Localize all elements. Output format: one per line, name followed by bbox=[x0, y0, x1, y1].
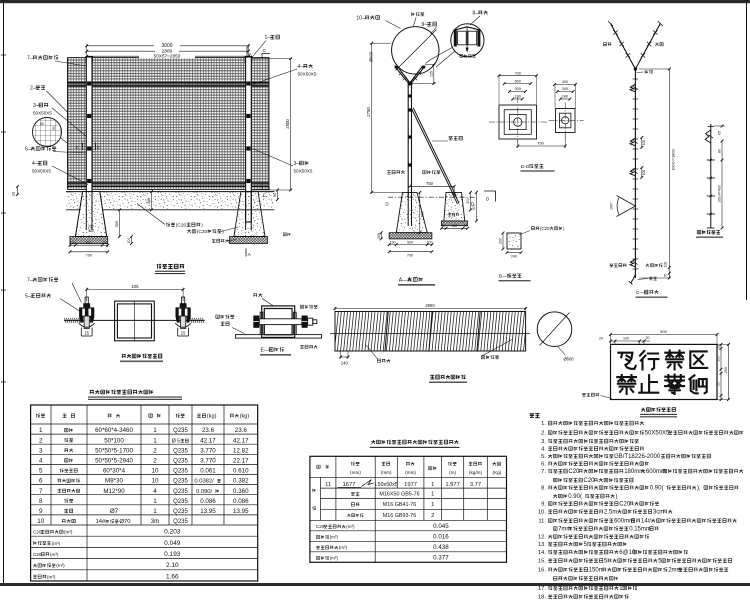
svg-text:): ) bbox=[563, 226, 565, 231]
svg-text:0.203: 0.203 bbox=[164, 529, 181, 536]
svg-text:1: 1 bbox=[153, 437, 157, 444]
svg-text:0.360: 0.360 bbox=[233, 488, 249, 495]
svg-text:250: 250 bbox=[88, 225, 94, 229]
svg-text:15: 15 bbox=[84, 331, 89, 336]
svg-text:(kg/m): (kg/m) bbox=[469, 470, 482, 475]
svg-text:300: 300 bbox=[562, 87, 568, 91]
svg-text:Ø7: Ø7 bbox=[110, 508, 119, 515]
svg-text:500: 500 bbox=[86, 241, 92, 245]
svg-text:C—C: C—C bbox=[636, 290, 648, 296]
svg-text:105: 105 bbox=[131, 284, 139, 289]
svg-text:D: D bbox=[385, 202, 389, 207]
svg-text:Ø600: Ø600 bbox=[369, 51, 374, 62]
svg-text:65: 65 bbox=[718, 131, 722, 135]
svg-text:2.5m: 2.5m bbox=[604, 510, 617, 516]
svg-text:50X50X5: 50X50X5 bbox=[298, 72, 317, 77]
svg-text:): ) bbox=[222, 229, 224, 235]
svg-text:C20: C20 bbox=[316, 524, 325, 529]
svg-text:200: 200 bbox=[499, 238, 503, 244]
svg-text:2990: 2990 bbox=[425, 303, 435, 308]
svg-text:125: 125 bbox=[429, 71, 433, 77]
svg-text:100: 100 bbox=[642, 170, 646, 176]
svg-text:Q235: Q235 bbox=[173, 509, 188, 515]
svg-text:5.: 5. bbox=[541, 454, 546, 460]
svg-text:2750: 2750 bbox=[366, 107, 371, 117]
svg-text:100: 100 bbox=[70, 241, 76, 245]
svg-text:300: 300 bbox=[452, 224, 458, 228]
svg-text:0.045: 0.045 bbox=[433, 523, 449, 530]
svg-text:1.977: 1.977 bbox=[445, 482, 460, 488]
svg-text:17.: 17. bbox=[538, 586, 546, 592]
svg-text:1: 1 bbox=[153, 508, 157, 515]
svg-text:1.: 1. bbox=[541, 421, 546, 427]
svg-text:16.: 16. bbox=[538, 568, 546, 574]
svg-text:10: 10 bbox=[37, 518, 45, 525]
svg-text:11: 11 bbox=[325, 482, 331, 488]
svg-text:(m³): (m³) bbox=[330, 556, 339, 561]
svg-text:4: 4 bbox=[153, 488, 157, 495]
svg-text:50*50*5-1700: 50*50*5-1700 bbox=[95, 447, 133, 454]
svg-text:50*100: 50*100 bbox=[104, 437, 124, 444]
svg-text:E: E bbox=[97, 145, 100, 150]
svg-text:Q235: Q235 bbox=[173, 489, 188, 495]
svg-text:M16 GB41-76: M16 GB41-76 bbox=[383, 502, 417, 508]
svg-text:0.382: 0.382 bbox=[233, 478, 249, 485]
svg-text:300: 300 bbox=[466, 198, 470, 204]
svg-text:100: 100 bbox=[390, 240, 396, 244]
svg-text:0.049: 0.049 bbox=[164, 540, 181, 547]
svg-text:750: 750 bbox=[426, 181, 434, 186]
svg-text:C20: C20 bbox=[568, 469, 580, 475]
svg-text:3cm: 3cm bbox=[653, 510, 664, 516]
svg-text:5: 5 bbox=[584, 542, 588, 548]
svg-text:0.061: 0.061 bbox=[200, 468, 216, 475]
svg-text:9—: 9— bbox=[422, 22, 430, 28]
svg-text:(Kg): (Kg) bbox=[493, 470, 502, 475]
svg-text:3.: 3. bbox=[541, 439, 546, 445]
svg-text:7: 7 bbox=[39, 488, 43, 495]
svg-text:500: 500 bbox=[660, 329, 667, 334]
svg-text:E—E: E—E bbox=[261, 348, 273, 354]
svg-text:5—: 5— bbox=[25, 294, 33, 300]
svg-text:(m³): (m³) bbox=[47, 574, 56, 579]
svg-text:0.90(: 0.90( bbox=[650, 486, 664, 492]
svg-text:15: 15 bbox=[181, 331, 186, 336]
svg-text:5: 5 bbox=[604, 559, 608, 565]
svg-text:Ø600: Ø600 bbox=[564, 357, 575, 362]
svg-text:100: 100 bbox=[642, 140, 646, 146]
svg-text:1: 1 bbox=[431, 502, 434, 508]
svg-text:20: 20 bbox=[12, 192, 16, 196]
svg-text:3—: 3— bbox=[33, 103, 41, 109]
svg-text:4—: 4— bbox=[32, 161, 40, 167]
svg-text:1: 1 bbox=[153, 427, 157, 434]
svg-text:12.82: 12.82 bbox=[233, 447, 249, 454]
svg-text:100: 100 bbox=[427, 240, 433, 244]
svg-text:3.770: 3.770 bbox=[200, 458, 216, 465]
svg-text:0.610: 0.610 bbox=[233, 468, 249, 475]
svg-text:1: 1 bbox=[39, 427, 43, 434]
svg-text:M12*90: M12*90 bbox=[103, 488, 125, 495]
svg-text:300: 300 bbox=[515, 87, 521, 91]
svg-text:8: 8 bbox=[39, 498, 43, 505]
svg-text:(mm): (mm) bbox=[405, 470, 416, 475]
svg-text:3.77: 3.77 bbox=[470, 482, 481, 488]
svg-text:Q235: Q235 bbox=[173, 428, 188, 434]
svg-text:180: 180 bbox=[562, 95, 568, 99]
svg-text:(m): (m) bbox=[449, 470, 456, 475]
svg-text:180mm: 180mm bbox=[624, 469, 644, 475]
svg-text:(C20: (C20 bbox=[540, 226, 550, 231]
svg-text:): ) bbox=[616, 494, 618, 500]
svg-text:6: 6 bbox=[39, 478, 43, 485]
svg-text:50X50X5: 50X50X5 bbox=[33, 111, 52, 116]
svg-text:1977: 1977 bbox=[404, 482, 417, 488]
svg-text:GB/T18226-2000: GB/T18226-2000 bbox=[614, 454, 661, 460]
svg-text:15.: 15. bbox=[538, 559, 546, 565]
svg-text:(m³): (m³) bbox=[346, 524, 355, 529]
svg-text:1.66: 1.66 bbox=[166, 573, 179, 580]
svg-text:150m: 150m bbox=[589, 568, 604, 574]
svg-text:0.193: 0.193 bbox=[164, 551, 181, 558]
svg-text:50: 50 bbox=[52, 126, 56, 130]
svg-text:14#: 14# bbox=[96, 519, 107, 525]
svg-text:240: 240 bbox=[511, 255, 517, 259]
svg-text:C20: C20 bbox=[33, 530, 42, 535]
svg-text:5: 5 bbox=[39, 468, 43, 475]
svg-text:750: 750 bbox=[537, 141, 544, 146]
svg-text:50: 50 bbox=[464, 224, 468, 228]
svg-text:(mm): (mm) bbox=[350, 470, 361, 475]
svg-text:500: 500 bbox=[115, 221, 119, 227]
svg-text:Ø70: Ø70 bbox=[119, 519, 131, 525]
svg-text:20: 20 bbox=[599, 337, 603, 341]
svg-text:0.377: 0.377 bbox=[433, 555, 449, 562]
svg-text:0.086: 0.086 bbox=[233, 498, 249, 505]
svg-text:600: 600 bbox=[421, 211, 425, 217]
svg-text:C20: C20 bbox=[33, 552, 42, 557]
svg-text:50X57=2850: 50X57=2850 bbox=[154, 54, 181, 59]
svg-text:13.: 13. bbox=[538, 542, 546, 548]
svg-text:2: 2 bbox=[431, 513, 434, 519]
svg-text:100: 100 bbox=[664, 262, 668, 268]
svg-text:13.95: 13.95 bbox=[233, 508, 249, 515]
svg-text:4.: 4. bbox=[541, 447, 546, 453]
svg-text:100: 100 bbox=[717, 356, 721, 362]
svg-text:180: 180 bbox=[515, 95, 521, 99]
svg-text:3.770: 3.770 bbox=[200, 447, 216, 454]
svg-text:D-D: D-D bbox=[521, 164, 530, 170]
svg-text:1—: 1— bbox=[265, 35, 273, 41]
svg-text:2500: 2500 bbox=[285, 119, 290, 129]
svg-text:E: E bbox=[76, 145, 79, 150]
svg-text:42.17: 42.17 bbox=[200, 437, 216, 444]
svg-text:2: 2 bbox=[153, 458, 157, 465]
svg-text:14.: 14. bbox=[538, 550, 546, 556]
svg-text:60*30*4: 60*30*4 bbox=[103, 468, 126, 475]
svg-text:(C20: (C20 bbox=[197, 229, 208, 235]
svg-text:23.6: 23.6 bbox=[235, 427, 248, 434]
svg-text:A—A: A—A bbox=[399, 278, 412, 284]
svg-text:400: 400 bbox=[562, 80, 568, 84]
svg-text:500: 500 bbox=[407, 240, 413, 244]
svg-text:(mm): (mm) bbox=[381, 470, 392, 475]
svg-text:200: 200 bbox=[127, 238, 131, 244]
svg-text:Q235: Q235 bbox=[173, 459, 188, 465]
svg-text:(kg): (kg) bbox=[207, 414, 217, 420]
svg-text:700: 700 bbox=[86, 254, 92, 258]
svg-text:3m: 3m bbox=[151, 518, 160, 525]
svg-text:3—: 3— bbox=[294, 161, 302, 167]
svg-text:14#: 14# bbox=[641, 519, 652, 525]
svg-text:50X50X5: 50X50X5 bbox=[32, 169, 51, 174]
svg-text:0.0382/: 0.0382/ bbox=[194, 479, 214, 485]
svg-text:100: 100 bbox=[102, 241, 108, 245]
svg-text:4: 4 bbox=[39, 458, 43, 465]
svg-text:3: 3 bbox=[39, 447, 43, 454]
svg-text:100xn=1800: 100xn=1800 bbox=[671, 148, 676, 170]
svg-text:C20: C20 bbox=[619, 502, 631, 508]
svg-text:): ) bbox=[201, 223, 203, 229]
svg-text:C: C bbox=[263, 48, 267, 53]
svg-text:12.: 12. bbox=[538, 535, 546, 541]
svg-text:Q235: Q235 bbox=[173, 479, 188, 485]
svg-text:7.: 7. bbox=[541, 469, 546, 475]
svg-text:Q235: Q235 bbox=[173, 499, 188, 505]
svg-text:50X50X5: 50X50X5 bbox=[294, 169, 313, 174]
svg-text:2: 2 bbox=[39, 437, 43, 444]
svg-text:20: 20 bbox=[717, 345, 721, 349]
svg-text:Q235: Q235 bbox=[173, 448, 188, 454]
svg-text:140: 140 bbox=[341, 361, 349, 366]
svg-text:C20: C20 bbox=[584, 478, 596, 484]
svg-text:1: 1 bbox=[431, 482, 434, 488]
svg-text:10: 10 bbox=[151, 468, 159, 475]
svg-text:100x4=400: 100x4=400 bbox=[718, 185, 722, 202]
svg-text:(m³): (m³) bbox=[52, 541, 61, 546]
svg-text:(m³): (m³) bbox=[50, 552, 59, 557]
svg-text:1: 1 bbox=[153, 498, 157, 505]
svg-text:50: 50 bbox=[442, 224, 446, 228]
svg-text:100°: 100° bbox=[610, 202, 614, 210]
svg-text:50X50X5: 50X50X5 bbox=[645, 431, 670, 437]
svg-text:1677: 1677 bbox=[343, 482, 356, 488]
svg-text:70: 70 bbox=[664, 274, 668, 278]
svg-text:700: 700 bbox=[515, 71, 521, 75]
svg-text:D: D bbox=[486, 197, 489, 202]
svg-text:8.: 8. bbox=[541, 486, 546, 492]
svg-text:0.090/: 0.090/ bbox=[196, 489, 213, 495]
svg-text:10.: 10. bbox=[538, 510, 546, 516]
svg-text:2: 2 bbox=[153, 447, 157, 454]
svg-text:9: 9 bbox=[39, 508, 43, 515]
svg-text:50*50*5-2940: 50*50*5-2940 bbox=[95, 458, 133, 465]
svg-text:L50x50x5: L50x50x5 bbox=[375, 482, 398, 488]
svg-text:(m³): (m³) bbox=[339, 545, 348, 550]
svg-text:20: 20 bbox=[646, 336, 650, 340]
svg-text:0.016: 0.016 bbox=[433, 534, 449, 541]
svg-text:500: 500 bbox=[472, 204, 476, 210]
svg-text:0.086: 0.086 bbox=[200, 498, 216, 505]
svg-text:60*60*4-3460: 60*60*4-3460 bbox=[95, 427, 133, 434]
svg-text:(C20: (C20 bbox=[176, 223, 187, 229]
svg-text:(m³): (m³) bbox=[330, 535, 339, 540]
svg-text:18.: 18. bbox=[538, 595, 546, 601]
svg-text:80: 80 bbox=[718, 149, 722, 153]
svg-text:100: 100 bbox=[377, 233, 381, 239]
svg-text:M8*30: M8*30 bbox=[105, 478, 123, 485]
svg-text:42.17: 42.17 bbox=[233, 437, 249, 444]
svg-text:Q235: Q235 bbox=[173, 519, 188, 525]
svg-text:300: 300 bbox=[147, 198, 151, 204]
svg-text:6.: 6. bbox=[541, 462, 546, 468]
svg-text:Ø 5: Ø 5 bbox=[172, 438, 180, 444]
svg-text:250: 250 bbox=[724, 367, 728, 373]
svg-text:),: ), bbox=[697, 486, 701, 492]
svg-text:50: 50 bbox=[40, 122, 44, 126]
svg-text:500: 500 bbox=[515, 79, 521, 83]
svg-text:6@10: 6@10 bbox=[619, 550, 636, 556]
svg-text:23.6: 23.6 bbox=[202, 427, 215, 434]
svg-text:0.90(: 0.90( bbox=[568, 494, 582, 500]
svg-text:10: 10 bbox=[151, 478, 159, 485]
svg-text:0.15mm: 0.15mm bbox=[629, 527, 651, 533]
svg-text:22.17: 22.17 bbox=[233, 458, 249, 465]
svg-text:20: 20 bbox=[717, 382, 721, 386]
svg-text:100: 100 bbox=[623, 337, 629, 341]
svg-text:1: 1 bbox=[431, 492, 434, 498]
svg-text:11.: 11. bbox=[538, 519, 546, 525]
svg-text:700: 700 bbox=[407, 253, 413, 257]
svg-text:Q235: Q235 bbox=[173, 469, 188, 475]
svg-text:2.: 2. bbox=[541, 431, 546, 437]
svg-text:300: 300 bbox=[88, 229, 94, 233]
svg-text:(kg): (kg) bbox=[240, 414, 250, 420]
svg-text:13.95: 13.95 bbox=[200, 508, 216, 515]
svg-text:M16 GB93-76: M16 GB93-76 bbox=[383, 513, 417, 519]
svg-text:M16X50 GB5-76: M16X50 GB5-76 bbox=[379, 492, 419, 498]
svg-text:(m³): (m³) bbox=[56, 563, 65, 568]
svg-text:0.438: 0.438 bbox=[433, 544, 449, 551]
svg-text:2.10: 2.10 bbox=[166, 562, 179, 569]
svg-text:A: A bbox=[248, 252, 252, 258]
svg-text:9.: 9. bbox=[541, 502, 546, 508]
svg-text:(m³): (m³) bbox=[64, 530, 73, 535]
